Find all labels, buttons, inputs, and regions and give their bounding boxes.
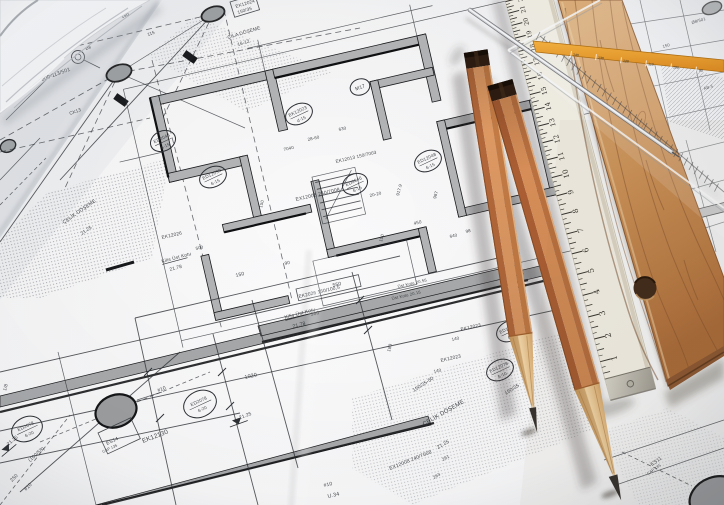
photo-blueprint-scene: EK12024150/35ÇILA DÖŞEME16-12800-113/501… (0, 0, 724, 505)
vignette (0, 0, 724, 505)
scene-canvas: EK12024150/35ÇILA DÖŞEME16-12800-113/501… (0, 0, 724, 505)
